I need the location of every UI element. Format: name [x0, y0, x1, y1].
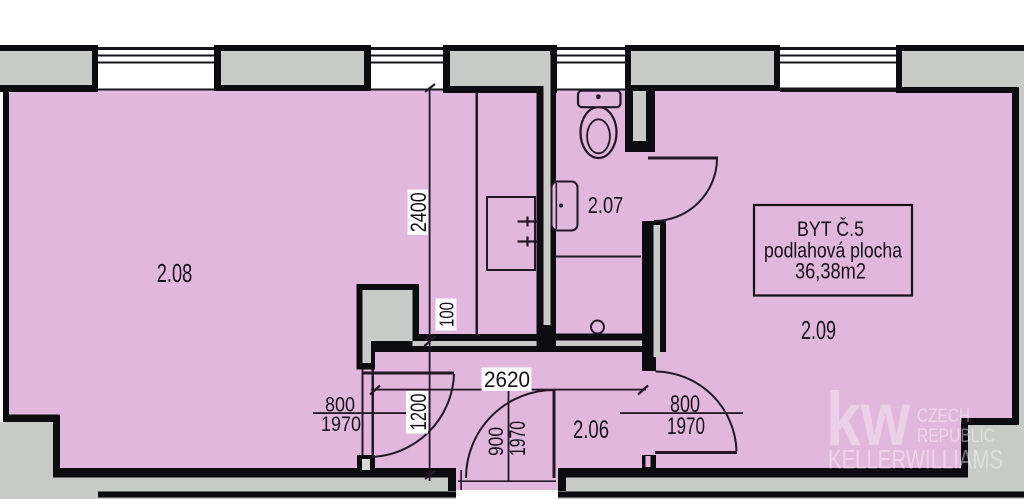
svg-text:1970: 1970: [667, 413, 705, 440]
svg-text:BYT Č.5: BYT Č.5: [797, 218, 864, 241]
svg-text:CZECH: CZECH: [917, 405, 970, 427]
svg-text:2.09: 2.09: [801, 315, 836, 345]
svg-text:2.06: 2.06: [573, 416, 609, 444]
svg-text:1970: 1970: [321, 412, 361, 436]
svg-text:KELLERWILLIAMS: KELLERWILLIAMS: [828, 445, 1003, 475]
svg-text:1200: 1200: [406, 394, 431, 431]
svg-text:36,38m2: 36,38m2: [795, 259, 866, 284]
svg-text:2620: 2620: [484, 367, 530, 392]
svg-text:2.08: 2.08: [157, 260, 193, 288]
svg-text:2.07: 2.07: [588, 192, 624, 218]
svg-text:100: 100: [437, 302, 459, 327]
svg-text:1970: 1970: [505, 421, 530, 456]
svg-text:2400: 2400: [406, 192, 431, 232]
